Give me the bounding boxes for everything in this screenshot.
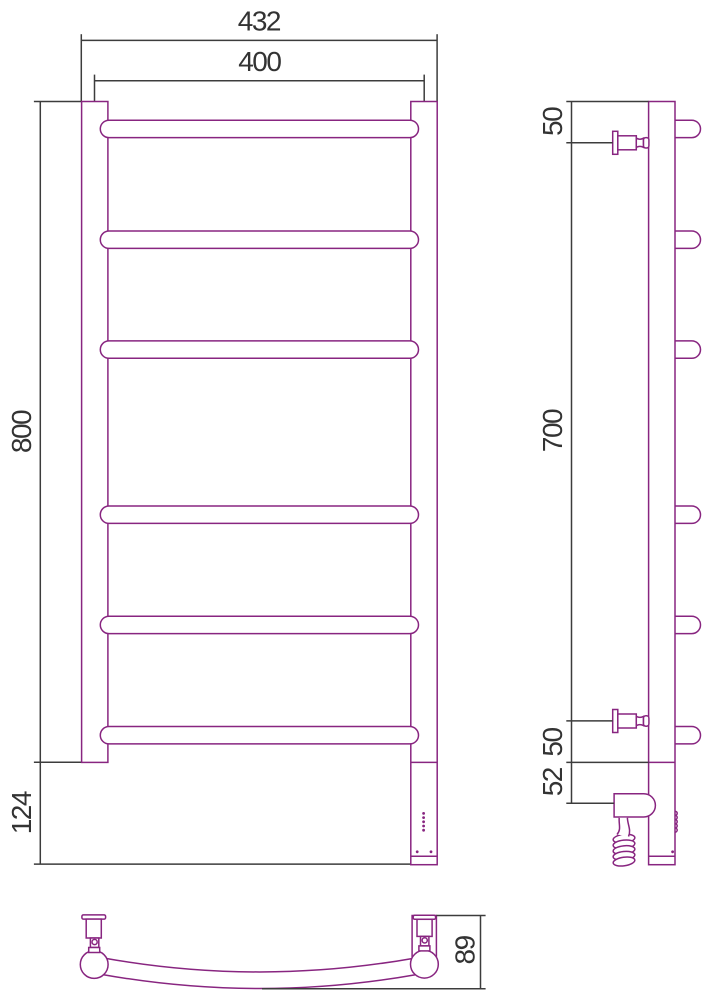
- svg-text:400: 400: [238, 46, 281, 77]
- svg-text:52: 52: [537, 767, 568, 796]
- svg-text:700: 700: [537, 409, 568, 452]
- svg-text:89: 89: [450, 935, 481, 964]
- svg-text:50: 50: [537, 107, 568, 136]
- svg-text:432: 432: [238, 5, 281, 36]
- svg-text:124: 124: [6, 791, 37, 834]
- svg-text:800: 800: [6, 410, 37, 453]
- svg-text:50: 50: [537, 728, 568, 757]
